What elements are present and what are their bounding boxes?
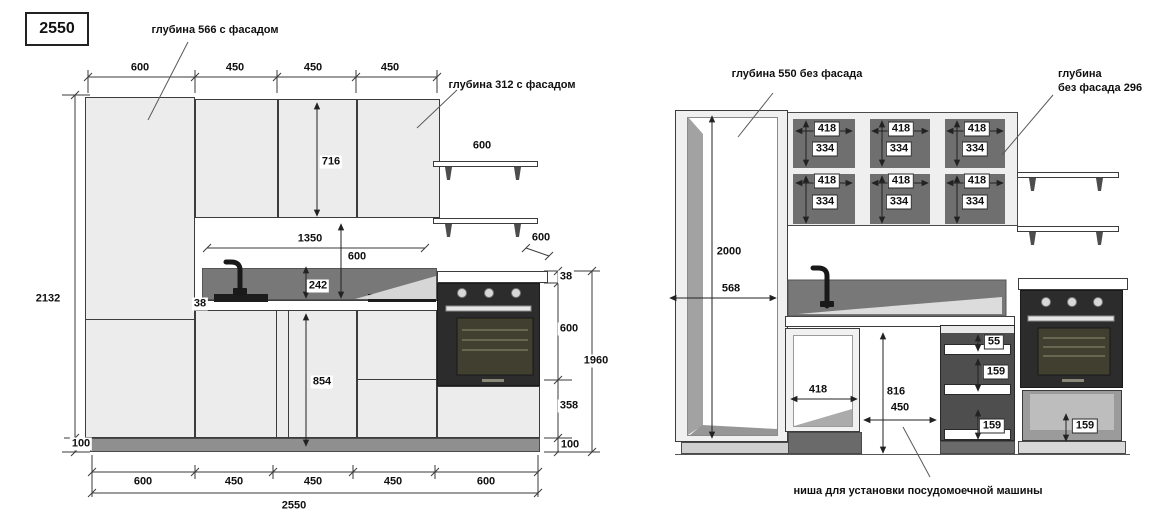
dim-wall-cab-height: 716 bbox=[320, 156, 342, 169]
dim-chain-total: 1960 bbox=[582, 355, 610, 368]
dimension-lines bbox=[62, 70, 600, 497]
note-leaders bbox=[148, 42, 1053, 477]
dim-plinth-left: 100 bbox=[70, 438, 92, 451]
shading-and-details bbox=[226, 117, 1114, 435]
dim-counter-depth: 600 bbox=[530, 232, 552, 245]
dim-chain-counter: 38 bbox=[558, 271, 574, 284]
dim-top-tall: 600 bbox=[129, 62, 151, 75]
dim-wall-s1-bot-w: 418 bbox=[814, 174, 840, 189]
dim-bottom-5: 600 bbox=[475, 476, 497, 489]
dim-bottom-2: 450 bbox=[223, 476, 245, 489]
dim-oven-drawer: 159 bbox=[1072, 419, 1098, 434]
dim-counter-thickness-left: 38 bbox=[192, 298, 208, 311]
dim-chain-oven: 600 bbox=[558, 323, 580, 336]
dim-shelf-width: 600 bbox=[471, 140, 493, 153]
dim-backsplash-height: 242 bbox=[307, 280, 329, 293]
dim-bottom-1: 600 bbox=[132, 476, 154, 489]
dim-wall-s2-bot-w: 418 bbox=[888, 174, 914, 189]
dim-top-door2: 450 bbox=[302, 62, 324, 75]
note-line2: без фасада 296 bbox=[1058, 81, 1142, 95]
dim-wall-s3-bot-h: 334 bbox=[962, 195, 988, 210]
dim-wall-s3-top-w: 418 bbox=[964, 122, 990, 137]
dim-niche-height: 816 bbox=[885, 386, 907, 399]
dim-drawer-159b: 159 bbox=[979, 419, 1005, 434]
dim-bottom-total: 2550 bbox=[280, 500, 308, 513]
note-depth-no-facade-wall: глубина без фасада 296 bbox=[1058, 67, 1142, 95]
dim-drawer-55: 55 bbox=[984, 335, 1004, 350]
note-depth-with-facade-wall: глубина 312 с фасадом bbox=[448, 79, 575, 91]
dim-wall-s2-top-h: 334 bbox=[886, 142, 912, 157]
dim-wall-s2-top-w: 418 bbox=[888, 122, 914, 137]
dimension-arrows bbox=[306, 103, 1066, 453]
dim-chain-drawer: 358 bbox=[558, 400, 580, 413]
dim-bottom-4: 450 bbox=[382, 476, 404, 489]
dim-total-height: 2132 bbox=[34, 293, 62, 306]
total-width-box: 2550 bbox=[25, 12, 89, 46]
dim-top-door3: 450 bbox=[379, 62, 401, 75]
dim-chain-plinth: 100 bbox=[559, 439, 581, 452]
dim-wall-s3-bot-w: 418 bbox=[964, 174, 990, 189]
note-dishwasher-niche: ниша для установки посудомоечной машины bbox=[793, 485, 1042, 497]
dim-wall-s1-top-h: 334 bbox=[812, 142, 838, 157]
dim-tall-interior-width: 568 bbox=[720, 283, 742, 296]
dim-wall-s2-bot-h: 334 bbox=[886, 195, 912, 210]
dim-wall-s3-top-h: 334 bbox=[962, 142, 988, 157]
dim-base-height: 854 bbox=[311, 376, 333, 389]
note-depth-with-facade-tall: глубина 566 с фасадом bbox=[151, 24, 278, 36]
dim-niche-width: 450 bbox=[889, 402, 911, 415]
dim-opening-width: 1350 bbox=[296, 233, 324, 246]
dim-apron-height: 600 bbox=[346, 251, 368, 264]
dim-bottom-3: 450 bbox=[302, 476, 324, 489]
note-depth-no-facade-tall: глубина 550 без фасада bbox=[732, 68, 863, 80]
dim-wall-s1-top-w: 418 bbox=[814, 122, 840, 137]
dim-sink-cabinet-width: 418 bbox=[807, 384, 829, 397]
dim-drawer-159a: 159 bbox=[983, 365, 1009, 380]
note-line1: глубина bbox=[1058, 67, 1142, 81]
dim-tall-interior-height: 2000 bbox=[715, 246, 743, 259]
kitchen-drawing: 2550 глубина 566 с фасадом глубина 312 с… bbox=[0, 0, 1149, 528]
dim-top-door1: 450 bbox=[224, 62, 246, 75]
dim-wall-s1-bot-h: 334 bbox=[812, 195, 838, 210]
